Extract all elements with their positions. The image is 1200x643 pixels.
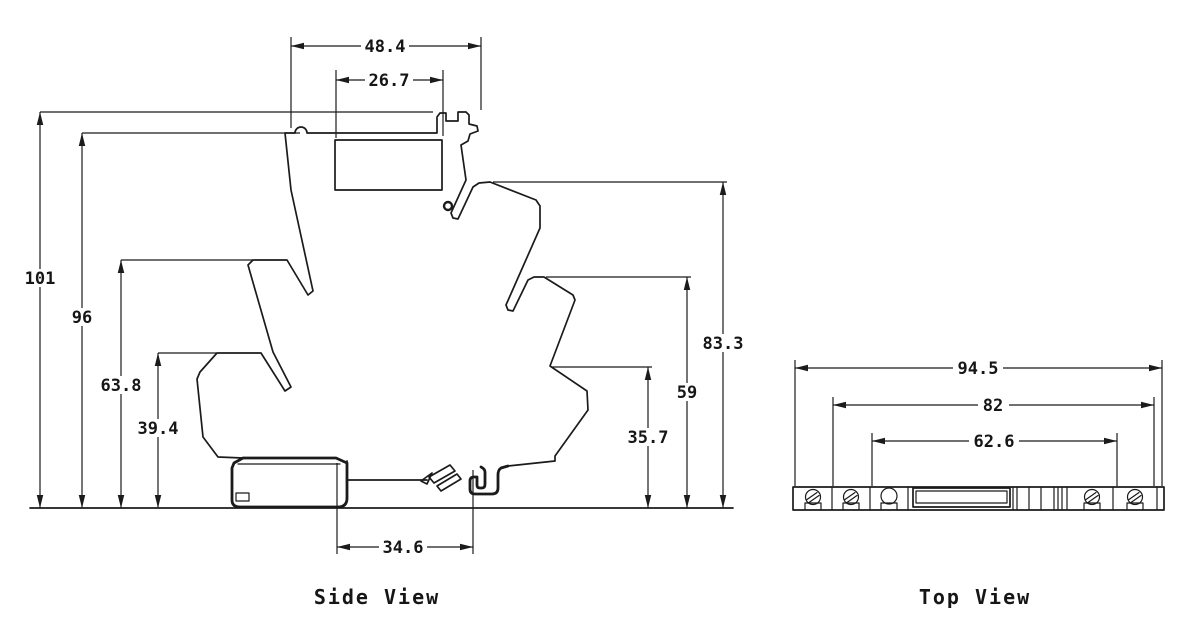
relay-socket-window bbox=[335, 140, 442, 190]
dim-housing-height: 96 bbox=[67, 133, 300, 508]
screw-head bbox=[881, 488, 897, 504]
dim-right-mid-height: 59 bbox=[546, 277, 703, 508]
dim-value: 26.7 bbox=[369, 71, 410, 91]
din-foot-left bbox=[232, 458, 347, 507]
dim-value: 35.7 bbox=[628, 428, 669, 448]
dim-lower-step-height: 39.4 bbox=[134, 353, 217, 508]
dim-right-lower-height: 35.7 bbox=[552, 367, 672, 508]
drawing-page: 48.4 26.7 101 96 63.8 bbox=[0, 0, 1200, 643]
screw-slot bbox=[807, 493, 819, 503]
screw-terminal bbox=[843, 490, 859, 511]
dim-value: 101 bbox=[25, 269, 56, 289]
dim-right-upper-height: 83.3 bbox=[493, 182, 747, 508]
screw-terminal bbox=[881, 488, 897, 510]
din-hook-right bbox=[421, 465, 508, 494]
side-profile-outline bbox=[197, 112, 588, 466]
hook-outline bbox=[470, 466, 508, 494]
dim-value: 34.6 bbox=[383, 538, 424, 558]
side-view-label: Side View bbox=[314, 585, 440, 609]
screw-head bbox=[844, 490, 859, 505]
dim-value: 96 bbox=[72, 308, 92, 328]
top-view-dimensions: 94.5 82 62.6 bbox=[795, 359, 1162, 486]
dim-mid-step-height: 63.8 bbox=[97, 260, 253, 508]
screw-terminal bbox=[1127, 490, 1143, 511]
dim-value: 83.3 bbox=[703, 334, 744, 354]
dim-inner-width: 62.6 bbox=[872, 432, 1117, 486]
dim-value: 82 bbox=[983, 396, 1003, 416]
screw-head bbox=[1128, 490, 1143, 505]
screw-slot bbox=[1086, 493, 1098, 503]
engineering-drawing: 48.4 26.7 101 96 63.8 bbox=[0, 0, 1200, 643]
screw-terminal bbox=[1084, 490, 1100, 511]
dim-value: 48.4 bbox=[365, 37, 406, 57]
spring-clip-bars bbox=[421, 465, 461, 491]
dim-value: 63.8 bbox=[101, 376, 142, 396]
dim-value: 39.4 bbox=[138, 419, 179, 439]
side-view bbox=[30, 112, 733, 508]
dim-value: 62.6 bbox=[974, 432, 1015, 452]
dim-socket-width: 26.7 bbox=[336, 70, 443, 138]
dim-value: 94.5 bbox=[958, 359, 999, 379]
dim-overall-width: 94.5 bbox=[795, 359, 1162, 486]
screw-head bbox=[1085, 490, 1100, 505]
screw-slot bbox=[845, 493, 857, 503]
screw-slot bbox=[1129, 493, 1141, 503]
top-view bbox=[793, 487, 1164, 510]
top-view-label: Top View bbox=[919, 585, 1031, 609]
screw-terminal bbox=[805, 490, 821, 511]
foot-slot bbox=[236, 493, 249, 501]
screw-head bbox=[806, 490, 821, 505]
base-edge bbox=[347, 461, 427, 480]
pivot-hole bbox=[444, 202, 452, 210]
label-window-inner bbox=[916, 491, 1007, 503]
dim-value: 59 bbox=[677, 383, 697, 403]
